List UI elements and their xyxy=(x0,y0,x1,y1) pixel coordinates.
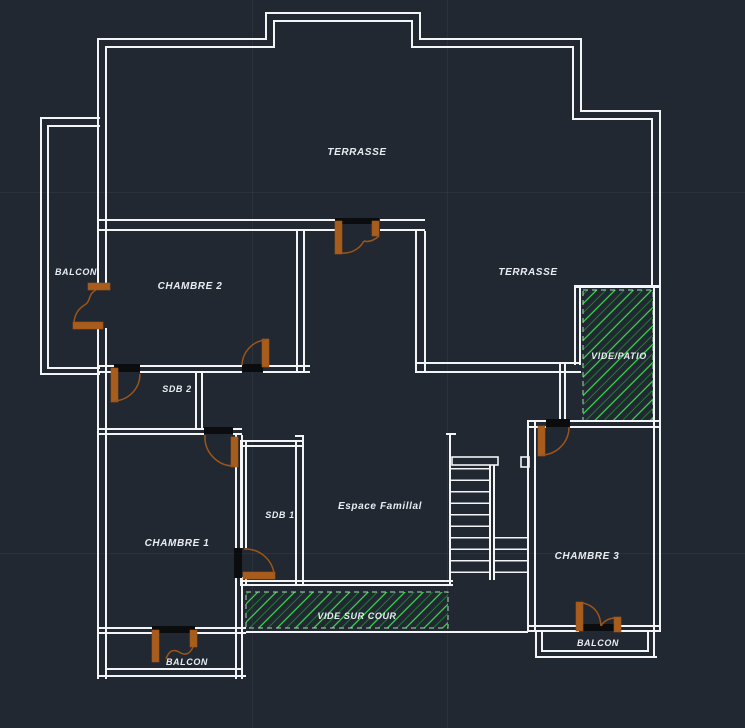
label-balcon-left: BALCON xyxy=(55,267,97,277)
balcony-left-walls xyxy=(40,117,100,375)
label-terrasse-right: TERRASSE xyxy=(498,267,557,278)
staircase[interactable] xyxy=(446,433,527,586)
door-balcon-left[interactable] xyxy=(73,283,110,329)
door-chambre3-top[interactable] xyxy=(538,426,569,456)
label-sdb2: SDB 2 xyxy=(162,384,192,394)
label-vide-patio: VIDE/PATIO xyxy=(591,351,647,361)
label-chambre1: CHAMBRE 1 xyxy=(145,538,210,549)
label-balcon-bottom-left: BALCON xyxy=(166,657,208,667)
label-chambre2: CHAMBRE 2 xyxy=(158,281,223,292)
floorplan-canvas[interactable]: TERRASSE TERRASSE BALCON CHAMBRE 2 SDB 2… xyxy=(0,0,745,728)
outer-walls xyxy=(97,12,661,679)
door-chambre2[interactable] xyxy=(242,339,269,367)
label-vide-sur-cour: VIDE SUR COUR xyxy=(317,611,396,621)
door-chambre1[interactable] xyxy=(205,435,238,467)
door-sdb2[interactable] xyxy=(111,368,140,402)
room-labels: TERRASSE TERRASSE BALCON CHAMBRE 2 SDB 2… xyxy=(55,147,647,667)
label-espace-familial: Espace Famillal xyxy=(338,501,422,512)
hatch-vide-sur-cour[interactable] xyxy=(246,592,448,628)
door-terrasse-double[interactable] xyxy=(335,221,379,254)
label-sdb1: SDB 1 xyxy=(265,510,295,520)
label-chambre3: CHAMBRE 3 xyxy=(555,551,620,562)
label-balcon-chambre3: BALCON xyxy=(577,638,619,648)
label-terrasse-top: TERRASSE xyxy=(327,147,386,158)
